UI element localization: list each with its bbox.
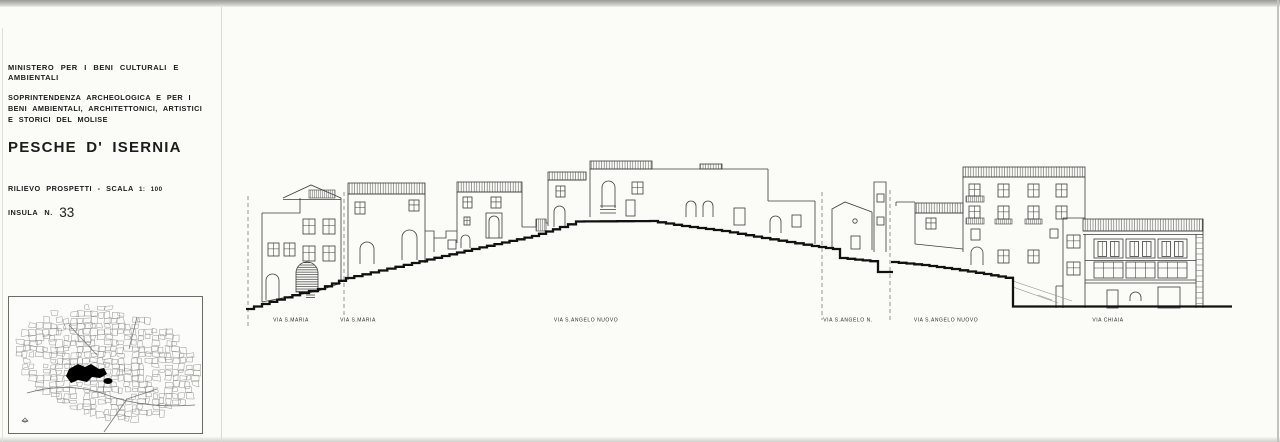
survey-scale-line: RILIEVO PROSPETTI - SCALA 1: 100 xyxy=(8,184,163,193)
section-cut-lines xyxy=(248,190,890,328)
street-label: VIA S.ANGELO N. xyxy=(823,318,872,324)
scale-value: 1: 100 xyxy=(139,186,163,193)
elevation-drawing: VIA S.MARIAVIA S.MARIAVIA S.ANGELO NUOVO… xyxy=(240,140,1245,340)
cadastral-map-svg xyxy=(9,297,202,433)
insula-line: INSULA N. 33 xyxy=(8,205,74,220)
scan-edge-right xyxy=(1277,0,1279,442)
survey-label: RILIEVO PROSPETTI xyxy=(8,184,92,193)
insula-number: 33 xyxy=(59,205,74,220)
scale-label: SCALA xyxy=(106,184,133,193)
title-block-divider xyxy=(221,7,222,442)
authority-line-2: BENI AMBIENTALI, ARCHITETTONICI, ARTISTI… xyxy=(8,103,218,114)
buildings-group xyxy=(262,161,1203,308)
street-labels-group: VIA S.MARIAVIA S.MARIAVIA S.ANGELO NUOVO… xyxy=(273,318,1124,324)
scan-edge-bottom xyxy=(0,437,1280,442)
street-label: VIA S.ANGELO NUOVO xyxy=(554,318,618,324)
authority-lines: SOPRINTENDENZA ARCHEOLOGICA E PER I BENI… xyxy=(8,92,218,125)
street-label: VIA CHIAIA xyxy=(1092,318,1123,324)
cadastral-map xyxy=(8,296,203,434)
sheet-title: PESCHE D' ISERNIA xyxy=(8,139,182,156)
elevation-svg: VIA S.MARIAVIA S.MARIAVIA S.ANGELO NUOVO… xyxy=(240,140,1245,340)
scan-edge-left xyxy=(2,28,3,442)
survey-separator: - xyxy=(98,184,101,193)
ministry-line: MINISTERO PER I BENI CULTURALI E AMBIENT… xyxy=(8,63,213,83)
street-label: VIA S.ANGELO NUOVO xyxy=(914,318,978,324)
drawing-sheet: MINISTERO PER I BENI CULTURALI E AMBIENT… xyxy=(0,0,1280,442)
authority-line-1: SOPRINTENDENZA ARCHEOLOGICA E PER I xyxy=(8,92,218,103)
street-label: VIA S.MARIA xyxy=(340,318,376,324)
authority-line-3: E STORICI DEL MOLISE xyxy=(8,114,218,125)
scan-edge-top xyxy=(0,0,1280,7)
insula-label: INSULA xyxy=(8,208,38,217)
street-label: VIA S.MARIA xyxy=(273,318,309,324)
insula-n-label: N. xyxy=(44,208,52,217)
